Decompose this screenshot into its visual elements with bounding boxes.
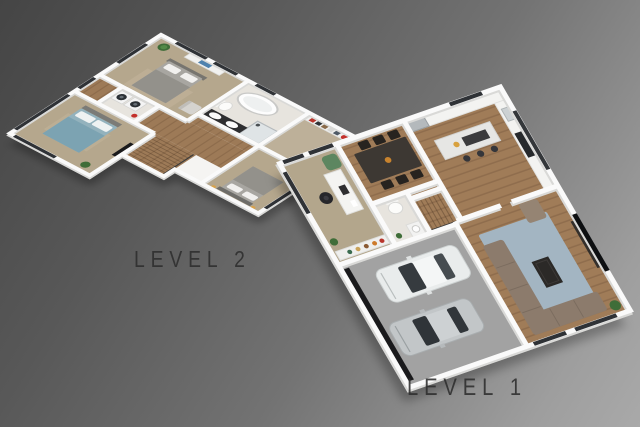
level-2-label: LEVEL 2	[134, 246, 251, 273]
floorplan-scene: { "labels": { "level2": "LEVEL 2", "leve…	[0, 0, 640, 427]
level-1-label: LEVEL 1	[407, 374, 527, 402]
